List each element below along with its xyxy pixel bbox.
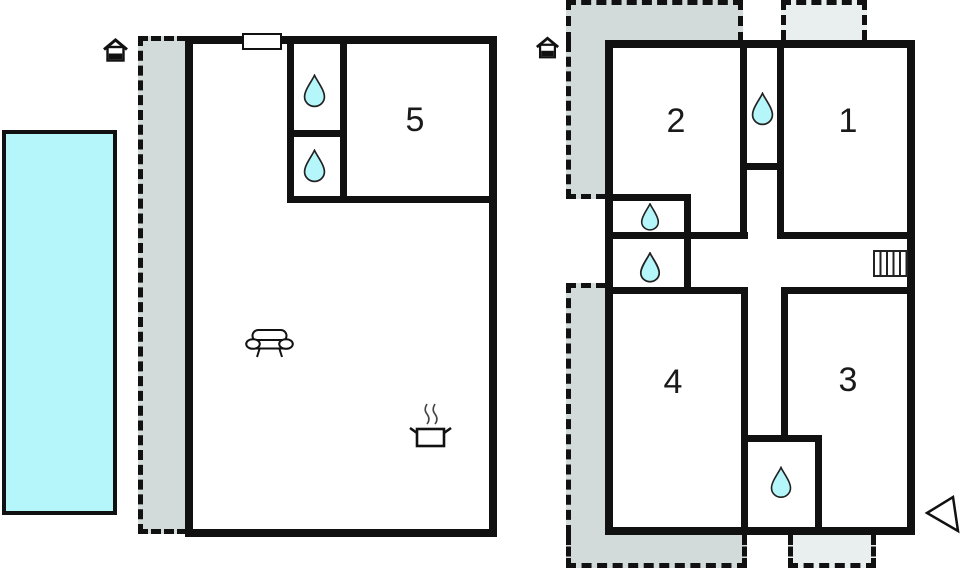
wall-segment <box>340 44 347 203</box>
water-drop-icon <box>639 252 661 283</box>
window-marker <box>242 33 282 50</box>
room-number: 1 <box>839 104 858 138</box>
room-number: 5 <box>406 103 425 137</box>
terrace-right-top-strip <box>566 42 606 199</box>
terrace-right-bottom-block <box>566 535 747 568</box>
wall-segment <box>741 435 822 442</box>
wall-segment <box>287 130 347 137</box>
wall-segment <box>613 194 691 201</box>
room-number: 3 <box>839 363 858 397</box>
room-label-4: 4 <box>652 358 694 406</box>
floor-plan: 5 <box>0 0 960 570</box>
room-label-2: 2 <box>655 97 697 145</box>
wall-segment <box>741 294 748 527</box>
room-label-1: 1 <box>827 97 869 145</box>
patio-top <box>781 0 867 40</box>
wall-segment <box>777 232 908 239</box>
room-label-5: 5 <box>394 96 436 144</box>
swimming-pool <box>2 130 117 515</box>
water-drop-icon <box>639 203 661 231</box>
wall-segment <box>815 442 822 527</box>
wall-segment <box>287 44 294 203</box>
wall-segment <box>613 232 748 239</box>
wall-segment <box>777 48 784 239</box>
wall-segment <box>684 194 691 294</box>
room-label-3: 3 <box>827 356 869 404</box>
water-drop-icon <box>303 74 326 108</box>
patio-bottom <box>788 535 876 568</box>
wall-segment <box>740 48 747 239</box>
sofa-icon <box>245 327 294 362</box>
wall-segment <box>781 294 788 442</box>
house-entrance-icon <box>102 38 129 63</box>
water-drop-icon <box>770 466 792 499</box>
wall-segment <box>781 287 908 294</box>
water-drop-icon <box>303 149 326 183</box>
room-number: 4 <box>664 365 683 399</box>
room-number: 2 <box>667 104 686 138</box>
house-entrance-icon <box>535 36 560 60</box>
cooking-pot-icon <box>408 401 453 450</box>
stairs-icon <box>873 250 908 277</box>
wall-segment <box>287 196 490 203</box>
wall-segment <box>740 163 784 170</box>
terrace-right-bottom-strip <box>566 283 606 535</box>
water-drop-icon <box>751 92 774 126</box>
terrace-left-building <box>138 36 187 534</box>
north-arrow-icon <box>924 493 960 536</box>
terrace-right-top-block <box>566 0 743 42</box>
wall-segment <box>613 287 748 294</box>
